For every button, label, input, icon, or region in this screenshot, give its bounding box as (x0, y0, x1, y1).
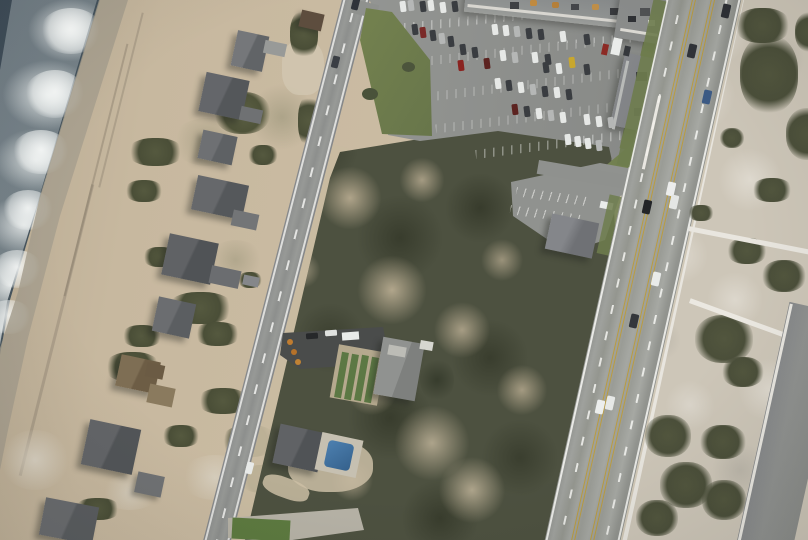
parking-lot-car (459, 44, 466, 56)
vignette (0, 0, 808, 540)
parking-lot-car (559, 112, 566, 124)
parking-lot-car (595, 140, 602, 152)
parking-lot-car (502, 25, 509, 37)
parking-lot-car (583, 64, 590, 76)
parking-lot-car (439, 2, 446, 14)
parking-lot-car (574, 136, 581, 148)
parking-lot-car (399, 1, 406, 13)
parking-lot-car (523, 106, 530, 118)
parking-lot-car (438, 33, 445, 45)
parking-lot-car (583, 114, 590, 126)
parking-lot-car (542, 62, 549, 74)
parking-lot-car (447, 36, 454, 48)
aerial-photograph (0, 0, 808, 540)
parking-lot-car (407, 0, 414, 11)
parking-lot-car (471, 47, 478, 59)
parking-lot-car (541, 86, 548, 98)
parking-lot-car (494, 78, 501, 90)
parking-lot-car (491, 24, 498, 36)
parking-lot-car (583, 34, 590, 46)
parking-lot-car (547, 110, 554, 122)
parking-lot-car (595, 116, 602, 128)
parking-lot-car (499, 50, 506, 62)
parking-lot-car (427, 0, 434, 11)
parking-lot-car (537, 29, 544, 41)
parking-lot-car (517, 82, 524, 94)
parking-lot-car (511, 52, 518, 64)
minigolf-car (306, 333, 318, 340)
parking-lot-car (531, 52, 538, 64)
parking-lot-car (525, 28, 532, 40)
parking-lot-car (555, 63, 562, 75)
parking-lot-car (564, 134, 571, 146)
parking-lot-car (419, 1, 426, 13)
parking-lot-car (568, 57, 575, 69)
parking-lot-car (529, 84, 536, 96)
parking-lot-car (457, 60, 464, 72)
parking-lot-car (559, 31, 566, 43)
parking-lot-car (483, 58, 490, 70)
parking-lot-car (411, 24, 418, 36)
parking-lot-car (451, 1, 458, 13)
minigolf-car (325, 330, 337, 337)
parking-lot-car (429, 30, 436, 42)
parking-lot-car (505, 80, 512, 92)
parking-lot-car (511, 104, 518, 116)
parking-lot-car (553, 87, 560, 99)
parking-lot-car (607, 117, 614, 129)
parking-lot-car (584, 138, 591, 150)
parking-lot-car (419, 27, 426, 39)
parking-lot-car (565, 89, 572, 101)
parking-lot-car (535, 108, 542, 120)
parking-lot-car (513, 26, 520, 38)
